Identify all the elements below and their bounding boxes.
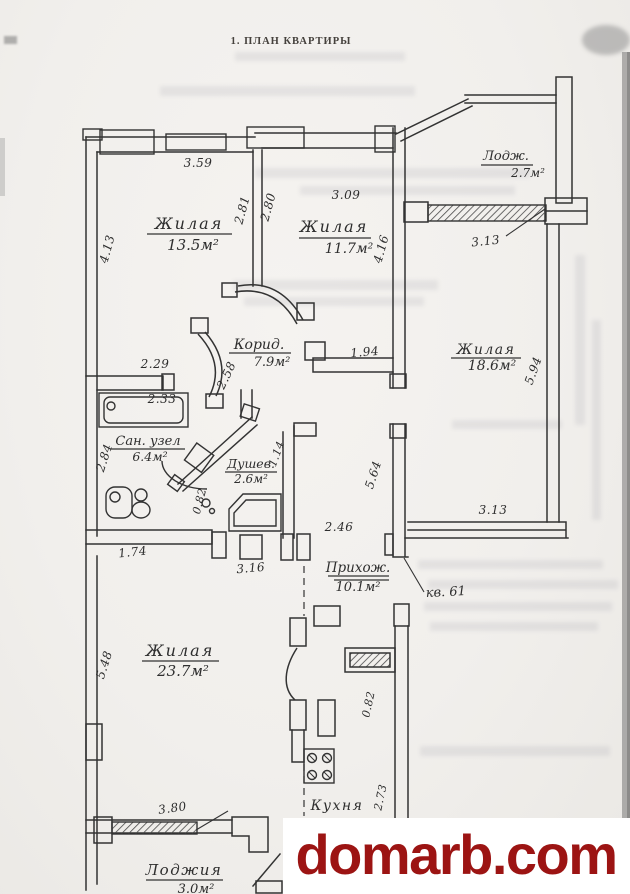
door-jamb xyxy=(297,534,310,560)
watermark: domarb.com xyxy=(283,818,630,894)
room-area-bathroom: 6.4м² xyxy=(132,449,167,464)
room-area-living2: 11.7м² xyxy=(325,241,374,257)
room-label-living2: Жилая xyxy=(299,217,369,236)
room-area-living4: 23.7м² xyxy=(156,662,209,680)
door-jamb xyxy=(212,532,226,558)
dim-2-58: 2.58 xyxy=(214,359,239,392)
window xyxy=(100,130,154,154)
door-jamb xyxy=(290,700,306,730)
scan-edge-shadow xyxy=(0,138,5,196)
bathtub-drain xyxy=(107,402,115,410)
bleed-smudge xyxy=(420,746,610,756)
dim-3-59: 3.59 xyxy=(184,156,213,170)
door-jamb xyxy=(240,535,262,559)
toilet-bowl xyxy=(132,502,150,518)
room-area-living3: 18.6м² xyxy=(468,358,517,374)
window-hatched xyxy=(112,822,197,834)
room-area-loggia-bottom: 3.0м² xyxy=(178,882,215,894)
dim-1-14: 1.14 xyxy=(266,439,287,468)
wall-pier xyxy=(318,700,335,736)
dim-3-16: 3.16 xyxy=(236,560,266,576)
room-label-kitchen: Кухня xyxy=(310,798,364,814)
door-jamb xyxy=(206,394,223,408)
room-label-loggia-bottom: Лоджия xyxy=(145,861,223,879)
bleed-smudge xyxy=(592,320,601,520)
door-jamb xyxy=(290,618,306,646)
wall-bathroom-bottom xyxy=(86,530,212,544)
dim-5-94: 5.94 xyxy=(522,355,545,387)
dim-1-74: 1.74 xyxy=(118,544,148,561)
wall-pier xyxy=(86,724,102,760)
wall-block-L xyxy=(232,817,268,852)
dim-0-82-shower: 0.82 xyxy=(190,487,209,516)
wall-stub xyxy=(385,534,393,555)
dim-0-82-kitchen: 0.82 xyxy=(359,690,377,719)
labels: 1. ПЛАН КВАРТИРЫ Жилая 13.5м² Жилая 11.7… xyxy=(93,36,545,894)
room-area-shower: 2.6м² xyxy=(233,472,268,486)
wall-loggia-diagonal xyxy=(396,99,472,141)
wall-kitchen-right xyxy=(395,626,408,846)
room-label-living4: Жилая xyxy=(145,641,215,660)
wall-loggia-top xyxy=(465,95,556,103)
toilet-tank xyxy=(135,489,147,501)
apartment-ref-label: кв. 61 xyxy=(425,584,466,601)
dim-2-81: 2.81 xyxy=(231,194,252,226)
dim-3-13-bottom: 3.13 xyxy=(479,503,508,517)
bleed-smudge xyxy=(235,52,405,61)
wall-stub xyxy=(294,423,316,436)
wall-bottom-room3 xyxy=(405,522,568,538)
scan-blot xyxy=(582,25,630,55)
bleed-smudge xyxy=(418,560,603,569)
wall-fragment xyxy=(256,881,282,893)
bleed-smudge xyxy=(233,280,438,290)
dim-4-16: 4.16 xyxy=(370,233,391,265)
dim-2-84: 2.84 xyxy=(93,442,115,475)
shower-drain-small xyxy=(210,509,215,514)
room-area-hall: 10.1м² xyxy=(336,580,381,595)
wall-right-room3 xyxy=(547,224,559,522)
dim-2-73: 2.73 xyxy=(371,783,389,813)
floor-plan-svg: 1. ПЛАН КВАРТИРЫ Жилая 13.5м² Жилая 11.7… xyxy=(0,0,630,894)
dim-3-09: 3.09 xyxy=(332,188,361,202)
dim-2-33: 2.33 xyxy=(147,392,177,406)
wall-loggia-column xyxy=(556,77,572,203)
room-label-loggia-top: Лодж. xyxy=(482,149,529,164)
bleed-smudge xyxy=(452,420,562,429)
scanned-floor-plan-page: 1. ПЛАН КВАРТИРЫ Жилая 13.5м² Жилая 11.7… xyxy=(0,0,630,894)
bleed-smudge xyxy=(424,602,612,611)
entrance-door-jamb xyxy=(314,606,340,626)
bleed-smudge xyxy=(430,622,598,631)
room-label-hall: Прихож. xyxy=(325,560,391,576)
dim-2-29: 2.29 xyxy=(140,357,170,371)
sink-drain xyxy=(110,492,120,502)
dim-3-80: 3.80 xyxy=(157,799,187,817)
room-label-bathroom: Сан. узел xyxy=(115,434,180,449)
door-jamb xyxy=(191,318,208,333)
scan-speck xyxy=(4,36,17,44)
wall-door-room4 xyxy=(292,730,304,762)
dim-3-13-top: 3.13 xyxy=(471,233,501,250)
room-area-living1: 13.5м² xyxy=(167,236,219,254)
shower-tray-inner xyxy=(234,500,276,526)
room-label-living3: Жилая xyxy=(456,342,516,358)
watermark-text: domarb.com xyxy=(295,823,616,886)
door-leaf-arc xyxy=(286,648,297,700)
room-label-corridor: Корид. xyxy=(233,337,285,353)
scan-edge-shadow xyxy=(622,52,627,818)
dim-5-64: 5.64 xyxy=(362,459,384,491)
vent-block-inner xyxy=(350,653,390,667)
bleed-through-smudges xyxy=(160,52,618,756)
stove-burner-marks xyxy=(309,755,330,778)
bleed-smudge xyxy=(575,255,585,425)
dim-4-13: 4.13 xyxy=(96,233,117,265)
window-hatched xyxy=(428,205,546,221)
page-title: 1. ПЛАН КВАРТИРЫ xyxy=(231,36,352,47)
entrance-door-jamb xyxy=(394,604,409,626)
room-label-living1: Жилая xyxy=(154,214,224,233)
sink xyxy=(106,487,132,518)
doors xyxy=(191,283,314,816)
door-jamb xyxy=(162,374,174,390)
wall-pier xyxy=(404,202,428,222)
bleed-smudge xyxy=(244,297,424,306)
room-area-loggia-top: 2.7м² xyxy=(510,166,545,180)
bleed-smudge xyxy=(160,86,415,96)
room-area-corridor: 7.9м² xyxy=(254,355,291,370)
dim-2-80: 2.80 xyxy=(257,191,278,223)
dim-1-94: 1.94 xyxy=(350,344,380,360)
dim-2-46: 2.46 xyxy=(324,520,354,534)
